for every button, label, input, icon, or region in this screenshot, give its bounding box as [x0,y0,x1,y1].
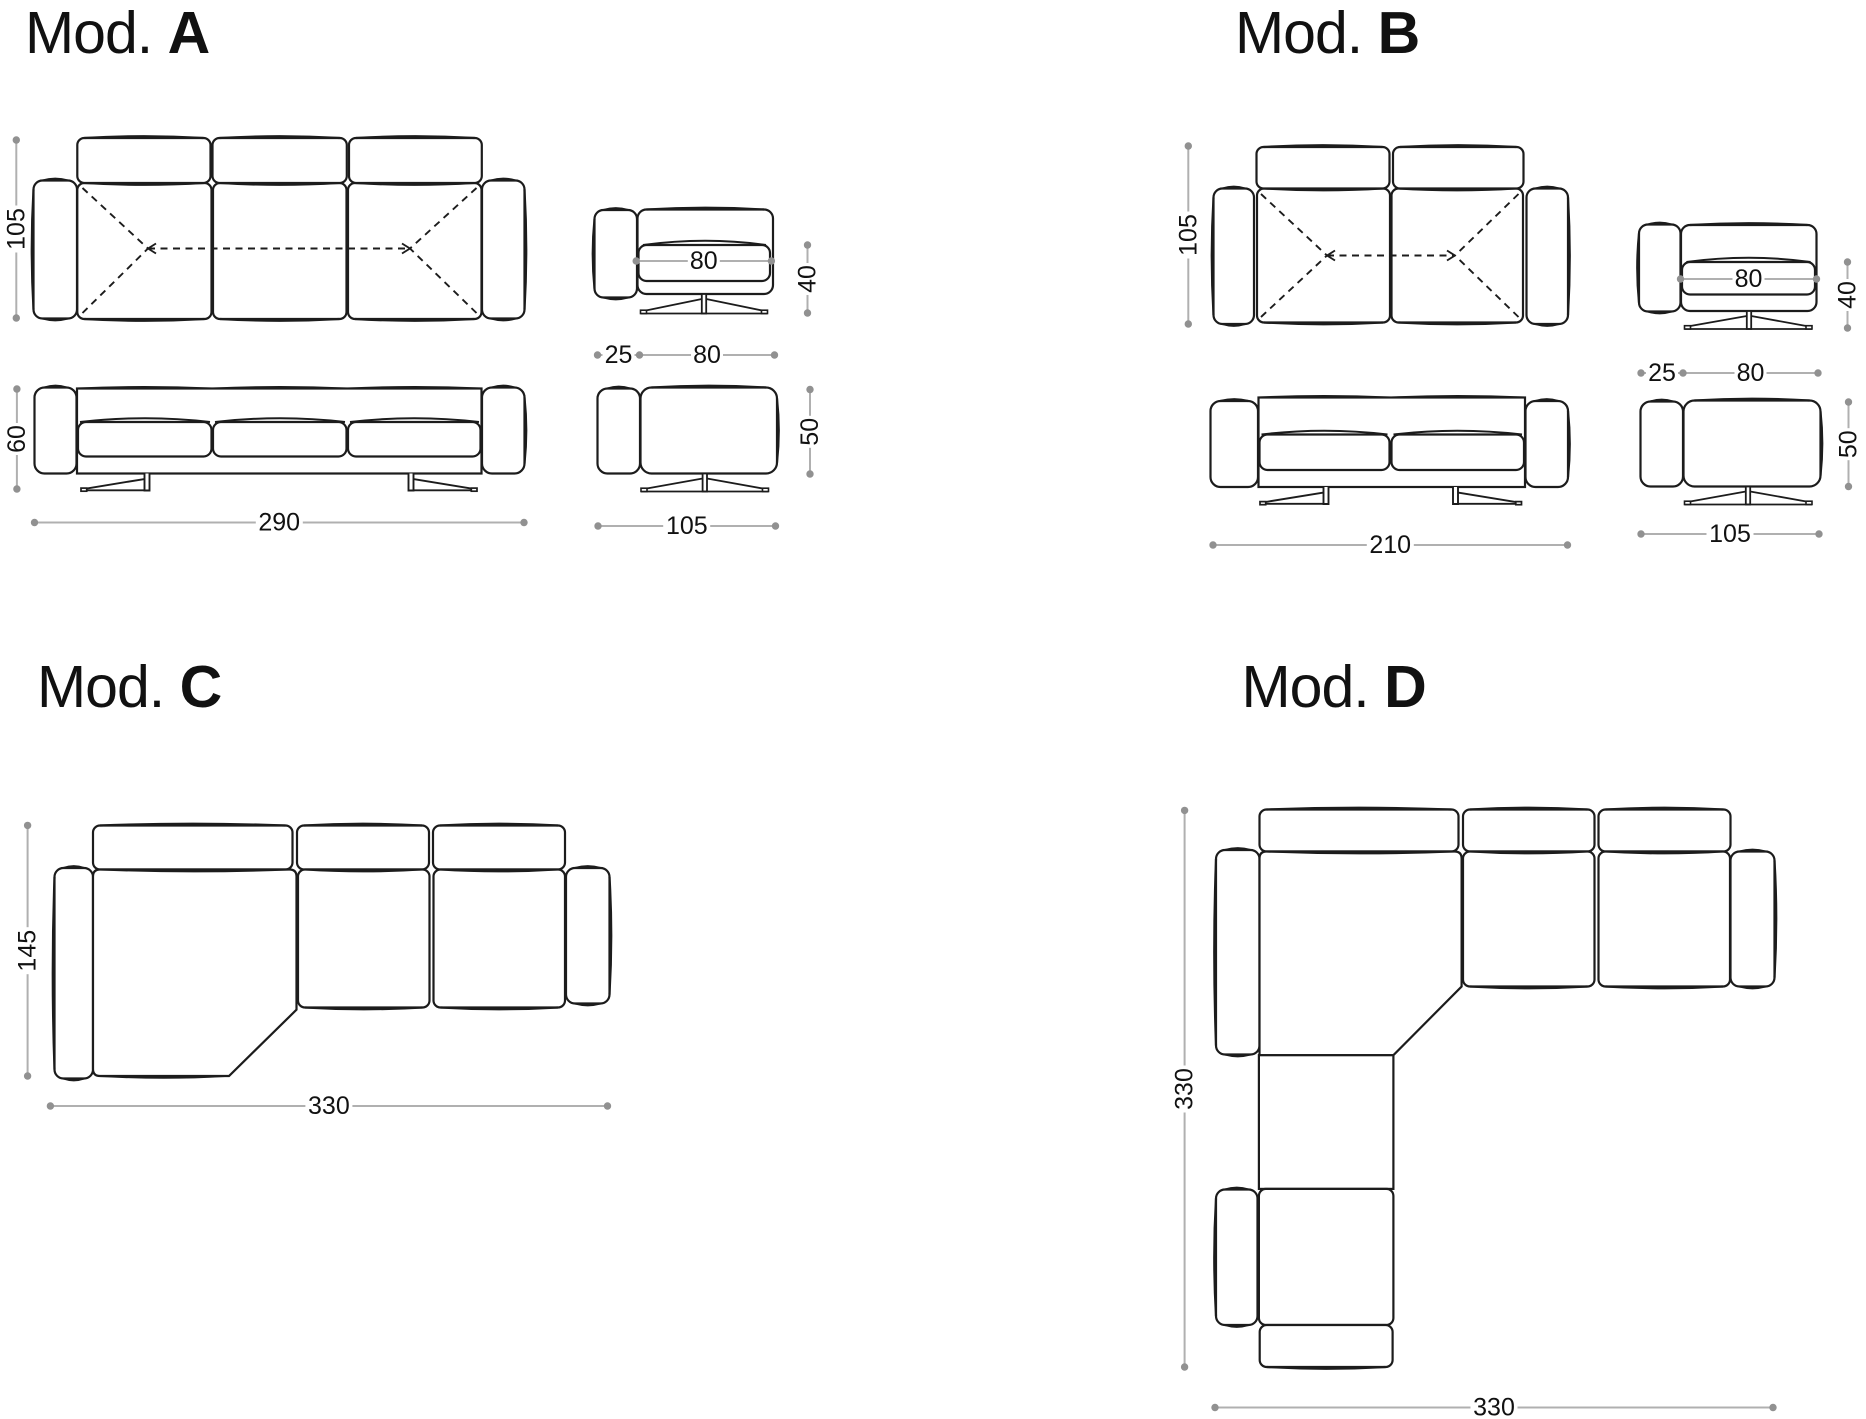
svg-text:80: 80 [690,247,718,275]
svg-text:25: 25 [1648,359,1676,387]
svg-text:50: 50 [1835,430,1863,458]
svg-text:330: 330 [1473,1394,1515,1419]
svg-text:80: 80 [1735,265,1763,293]
svg-text:50: 50 [796,418,824,446]
svg-text:290: 290 [258,509,300,537]
svg-text:60: 60 [3,425,31,453]
svg-text:25: 25 [605,341,633,369]
svg-text:Mod. B: Mod. B [1235,0,1419,66]
svg-text:40: 40 [794,265,822,293]
svg-text:Mod. C: Mod. C [37,654,221,720]
svg-text:105: 105 [2,208,30,250]
svg-text:330: 330 [1171,1068,1199,1110]
svg-text:105: 105 [666,512,708,540]
svg-text:40: 40 [1834,281,1862,309]
svg-text:145: 145 [14,930,42,972]
svg-text:Mod. D: Mod. D [1242,654,1426,720]
svg-text:80: 80 [693,341,721,369]
svg-text:80: 80 [1737,359,1765,387]
svg-text:330: 330 [308,1092,350,1120]
svg-text:210: 210 [1369,531,1411,559]
svg-text:105: 105 [1174,214,1202,256]
svg-text:Mod. A: Mod. A [25,0,210,66]
svg-text:105: 105 [1709,520,1751,548]
